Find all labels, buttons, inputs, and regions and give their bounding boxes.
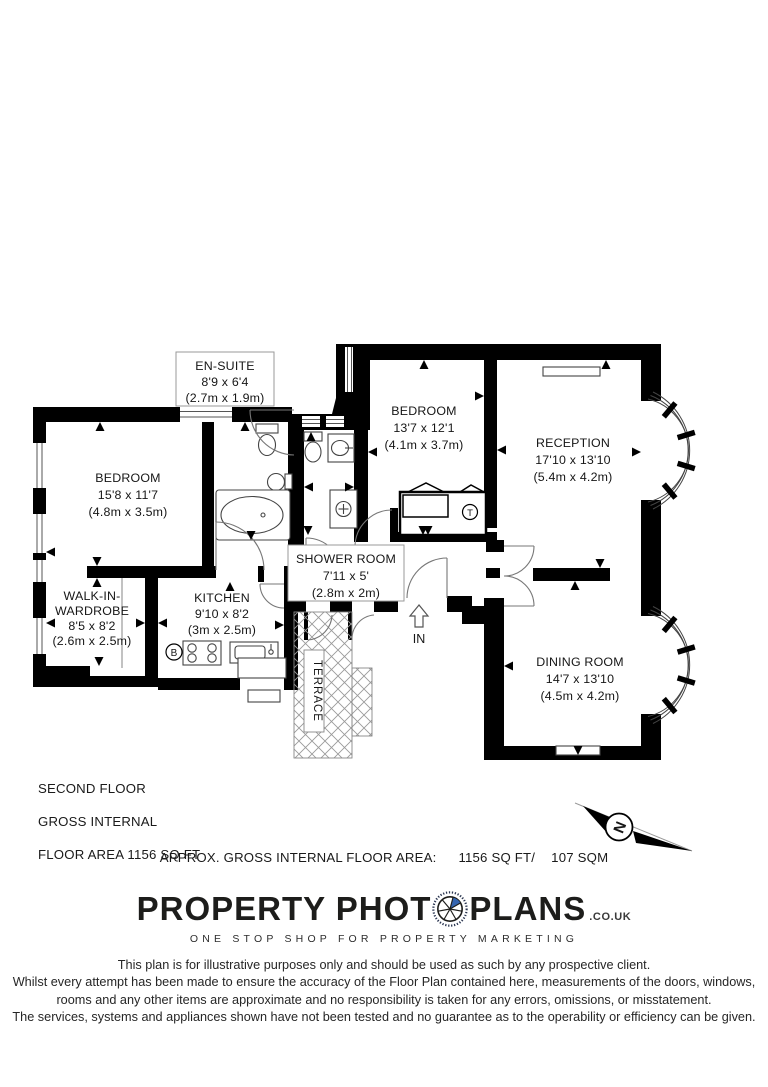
window-shower-2: [326, 416, 344, 427]
label-terrace: TERRACE: [311, 660, 323, 722]
floor-info-line: GROSS INTERNAL: [38, 814, 200, 831]
logo: PROPERTY PHOT PLANS .CO.UK: [0, 891, 768, 927]
window-left-1: [33, 443, 46, 488]
entrance-arrow-icon: [410, 605, 428, 627]
kitchen-counter: [238, 658, 286, 702]
window-left-4: [33, 618, 46, 654]
window-shower-1: [302, 416, 320, 427]
area-summary-imperial: 1156 SQ FT/: [458, 850, 535, 865]
disclaimer: This plan is for illustrative purposes o…: [0, 957, 768, 1026]
svg-text:B: B: [171, 648, 178, 659]
svg-text:8'9 x 6'4: 8'9 x 6'4: [201, 375, 248, 389]
label-bedroom-middle: BEDROOM 13'7 x 12'1 (4.1m x 3.7m): [384, 404, 463, 452]
disclaimer-line: The services, systems and appliances sho…: [0, 1009, 768, 1026]
svg-text:(4.1m x 3.7m): (4.1m x 3.7m): [384, 438, 463, 452]
svg-text:T: T: [467, 508, 473, 519]
svg-text:(3m x 2.5m): (3m x 2.5m): [188, 623, 256, 637]
svg-text:(2.7m x 1.9m): (2.7m x 1.9m): [185, 391, 264, 405]
floorplan-drawing: EN-SUITE 8'9 x 6'4 (2.7m x 1.9m) BEDROOM…: [0, 0, 768, 760]
area-summary-metric: 107 SQM: [551, 850, 608, 865]
label-kitchen: KITCHEN 9'10 x 8'2 (3m x 2.5m): [188, 591, 256, 637]
svg-text:SHOWER ROOM: SHOWER ROOM: [296, 552, 396, 566]
label-dining-room: DINING ROOM 14'7 x 13'10 (4.5m x 4.2m): [536, 655, 624, 703]
ensuite-basin-icon: [268, 474, 293, 491]
bay-window-reception: [648, 392, 695, 509]
svg-text:(4.5m x 4.2m): (4.5m x 4.2m): [540, 689, 619, 703]
svg-text:9'10 x 8'2: 9'10 x 8'2: [195, 607, 249, 621]
logo-text-2: PLANS: [469, 891, 586, 927]
svg-text:RECEPTION: RECEPTION: [536, 436, 610, 450]
kitchen-door: [260, 584, 284, 608]
svg-text:14'7 x 13'10: 14'7 x 13'10: [546, 672, 614, 686]
window-left-2: [33, 514, 46, 553]
hob-icon: [183, 641, 221, 665]
svg-text:EN-SUITE: EN-SUITE: [195, 359, 254, 373]
svg-text:(5.4m x 4.2m): (5.4m x 4.2m): [533, 470, 612, 484]
label-bedroom-left: BEDROOM 15'8 x 11'7 (4.8m x 3.5m): [88, 471, 167, 519]
svg-text:(4.8m x 3.5m): (4.8m x 3.5m): [88, 505, 167, 519]
svg-text:BEDROOM: BEDROOM: [391, 404, 456, 418]
entry-door: [407, 558, 447, 598]
floor-info-line: SECOND FLOOR: [38, 781, 200, 798]
svg-text:WARDROBE: WARDROBE: [55, 604, 129, 618]
radiator: [543, 367, 600, 376]
svg-text:WALK-IN-: WALK-IN-: [64, 589, 121, 603]
entrance-label: IN: [413, 632, 426, 646]
compass-needle-east: [633, 831, 692, 851]
floorplan-page: EN-SUITE 8'9 x 6'4 (2.7m x 1.9m) BEDROOM…: [0, 0, 768, 1087]
window-left-3: [33, 560, 46, 582]
disclaimer-line: This plan is for illustrative purposes o…: [0, 957, 768, 974]
window-top-bedroom: [180, 407, 232, 422]
shower-tray-icon: [330, 490, 357, 528]
logo-text-1: PROPERTY PHOT: [137, 891, 432, 927]
svg-text:KITCHEN: KITCHEN: [194, 591, 250, 605]
reception-double-doors: [504, 546, 534, 606]
entrance-marker: IN: [410, 605, 428, 646]
svg-text:15'8 x 11'7: 15'8 x 11'7: [98, 488, 158, 502]
logo-suffix: .CO.UK: [589, 911, 631, 923]
area-summary-label: APPROX. GROSS INTERNAL FLOOR AREA:: [160, 850, 437, 865]
disclaimer-line: rooms and any other items are approximat…: [0, 992, 768, 1009]
label-walk-in-wardrobe: WALK-IN- WARDROBE 8'5 x 8'2 (2.6m x 2.5m…: [52, 589, 131, 648]
svg-text:(2.8m x 2m): (2.8m x 2m): [312, 586, 380, 600]
svg-text:7'11 x 5': 7'11 x 5': [323, 569, 369, 583]
window-lightwell: [345, 347, 353, 392]
area-summary: APPROX. GROSS INTERNAL FLOOR AREA: 1156 …: [0, 850, 768, 865]
camera-aperture-icon: [432, 891, 468, 927]
svg-text:13'7 x 12'1: 13'7 x 12'1: [393, 421, 454, 435]
svg-text:DINING ROOM: DINING ROOM: [536, 655, 624, 669]
boiler-symbol: B: [166, 644, 182, 660]
svg-text:17'10 x 13'10: 17'10 x 13'10: [535, 453, 611, 467]
tank-symbol: T: [463, 505, 478, 520]
svg-text:BEDROOM: BEDROOM: [95, 471, 160, 485]
svg-text:8'5 x 8'2: 8'5 x 8'2: [68, 619, 115, 633]
disclaimer-line: Whilst every attempt has been made to en…: [0, 974, 768, 991]
svg-text:(2.6m x 2.5m): (2.6m x 2.5m): [52, 634, 131, 648]
label-reception: RECEPTION 17'10 x 13'10 (5.4m x 4.2m): [533, 436, 612, 484]
shower-basin-icon: [328, 434, 354, 462]
logo-tagline: ONE STOP SHOP FOR PROPERTY MARKETING: [0, 933, 768, 945]
bay-window-dining: [648, 607, 695, 724]
